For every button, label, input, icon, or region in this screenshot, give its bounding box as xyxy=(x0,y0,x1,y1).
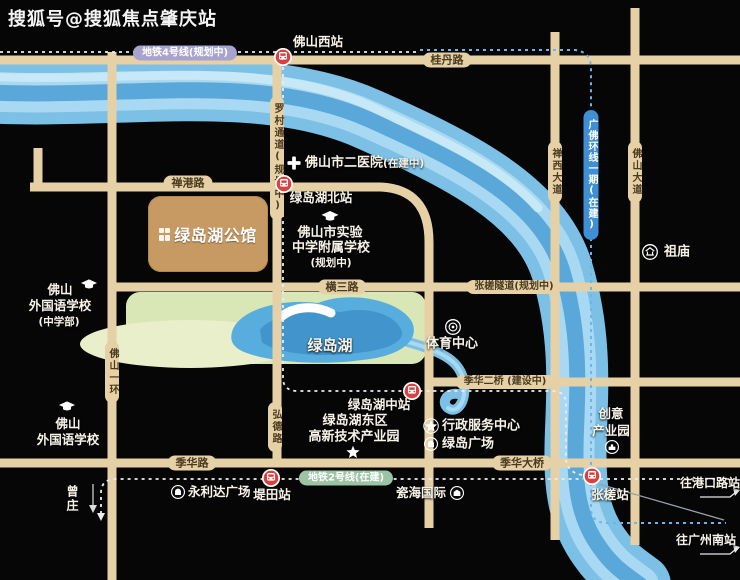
project-site: 绿岛湖公馆 xyxy=(148,196,268,272)
hospital-cross-icon xyxy=(287,156,302,171)
metro-station-icon-foshan-west xyxy=(274,48,293,67)
poi-experimental-school-line1: 佛山市实验 xyxy=(297,227,362,240)
factory-icon-creative-park xyxy=(605,440,620,455)
road-label-foshan-ring: 佛山一环 xyxy=(105,341,119,403)
poi-foreign-school-middle-line3: (中学部) xyxy=(38,317,79,328)
road-label-hongde: 弘德路 xyxy=(268,402,282,452)
poi-hitech-park-line1: 绿岛湖东区 xyxy=(322,415,387,428)
metro-line4-label: 地铁4号线(规划中) xyxy=(133,46,237,61)
poi-experimental-school-line3: (规划中) xyxy=(310,258,351,269)
road-label-jihua-second-bridge: 季华二桥 (建设中) xyxy=(456,375,555,389)
station-label-titian: 堤田站 xyxy=(253,489,291,502)
star-icon-admin-center xyxy=(423,418,439,434)
road-label-foshan-avenue: 佛山大道 xyxy=(628,141,642,203)
location-map: 搜狐号@搜狐焦点肇庆站 地铁4号线(规划中) 地铁2号线(在建) 广佛环线一期(… xyxy=(0,0,740,580)
school-cap-icon-foreign-middle xyxy=(81,279,97,291)
station-label-zhangcha: 张槎站 xyxy=(591,489,629,502)
guangfo-ring-label: 广佛环线一期(在建) xyxy=(584,110,599,240)
road-label-changang: 禅港路 xyxy=(164,176,213,191)
poi-creative-park-line2: 产业园 xyxy=(592,425,630,438)
project-name: 绿岛湖公馆 xyxy=(174,222,257,246)
metro-line2-label: 地铁2号线(在建) xyxy=(299,471,393,486)
poi-foreign-school-middle-line2: 外国语学校 xyxy=(29,300,92,313)
stadium-icon xyxy=(445,319,462,336)
direction-to-guangzhou-south: 往广州南站 xyxy=(676,534,736,546)
station-label-foshan-west: 佛山西站 xyxy=(293,36,343,49)
poi-zumiao: 祖庙 xyxy=(664,246,690,259)
watermark: 搜狐号@搜狐焦点肇庆站 xyxy=(8,5,217,31)
poi-sports-center: 体育中心 xyxy=(426,338,478,351)
temple-icon xyxy=(642,244,659,261)
road-label-chanxi-avenue: 禅西大道 xyxy=(548,141,562,203)
hospital-status: (在建中) xyxy=(383,158,424,170)
poi-foreign-school-line1: 佛山 xyxy=(55,418,80,431)
plaza-icon-lvdao xyxy=(424,437,439,452)
poi-admin-center: 行政服务中心 xyxy=(442,420,520,433)
project-logo-mark xyxy=(159,228,170,241)
metro-station-icon-titian xyxy=(262,469,281,488)
road-label-jihua: 季华路 xyxy=(168,456,217,471)
poi-hitech-park-line2: 高新技术产业园 xyxy=(308,431,399,444)
road-label-luocun-channel: 罗村通道(规划中) xyxy=(270,96,284,220)
poi-experimental-school-line2: 中学附属学校 xyxy=(292,242,370,255)
road-label-jihua-bridge: 季华大桥 xyxy=(492,456,552,471)
poi-foreign-school-line2: 外国语学校 xyxy=(37,434,100,447)
metro-station-icon-zhangcha xyxy=(583,467,602,486)
poi-lvdao-plaza: 绿岛广场 xyxy=(442,438,494,451)
poi-foreign-school-middle-line1: 佛山 xyxy=(47,284,72,297)
school-cap-icon-foreign xyxy=(59,401,75,413)
station-label-lvdaohu-north: 绿岛湖北站 xyxy=(290,192,353,205)
plaza-icon-yonglida xyxy=(171,485,186,500)
market-icon-cihai xyxy=(450,486,465,501)
star-icon-hitech xyxy=(346,445,360,459)
lake-label: 绿岛湖 xyxy=(307,339,352,354)
direction-zengzhuang: 曾庄 xyxy=(66,485,78,513)
poi-yonglida-plaza: 永利达广场 xyxy=(188,486,251,499)
direction-to-gangkou: 往港口路站 xyxy=(680,477,740,489)
road-label-guidan: 桂丹路 xyxy=(423,53,472,68)
poi-creative-park-line1: 创意 xyxy=(598,408,623,421)
poi-cihai-international: 瓷海国际 xyxy=(396,487,446,500)
poi-hospital: 佛山市二医院(在建中) xyxy=(305,157,424,170)
station-label-lvdaohu-middle: 绿岛湖中站 xyxy=(348,399,411,412)
road-label-hengsan: 横三路 xyxy=(318,280,367,295)
school-cap-icon-experimental xyxy=(322,211,339,224)
road-label-zhangcha-tunnel: 张槎隧道(规划中) xyxy=(466,280,561,294)
